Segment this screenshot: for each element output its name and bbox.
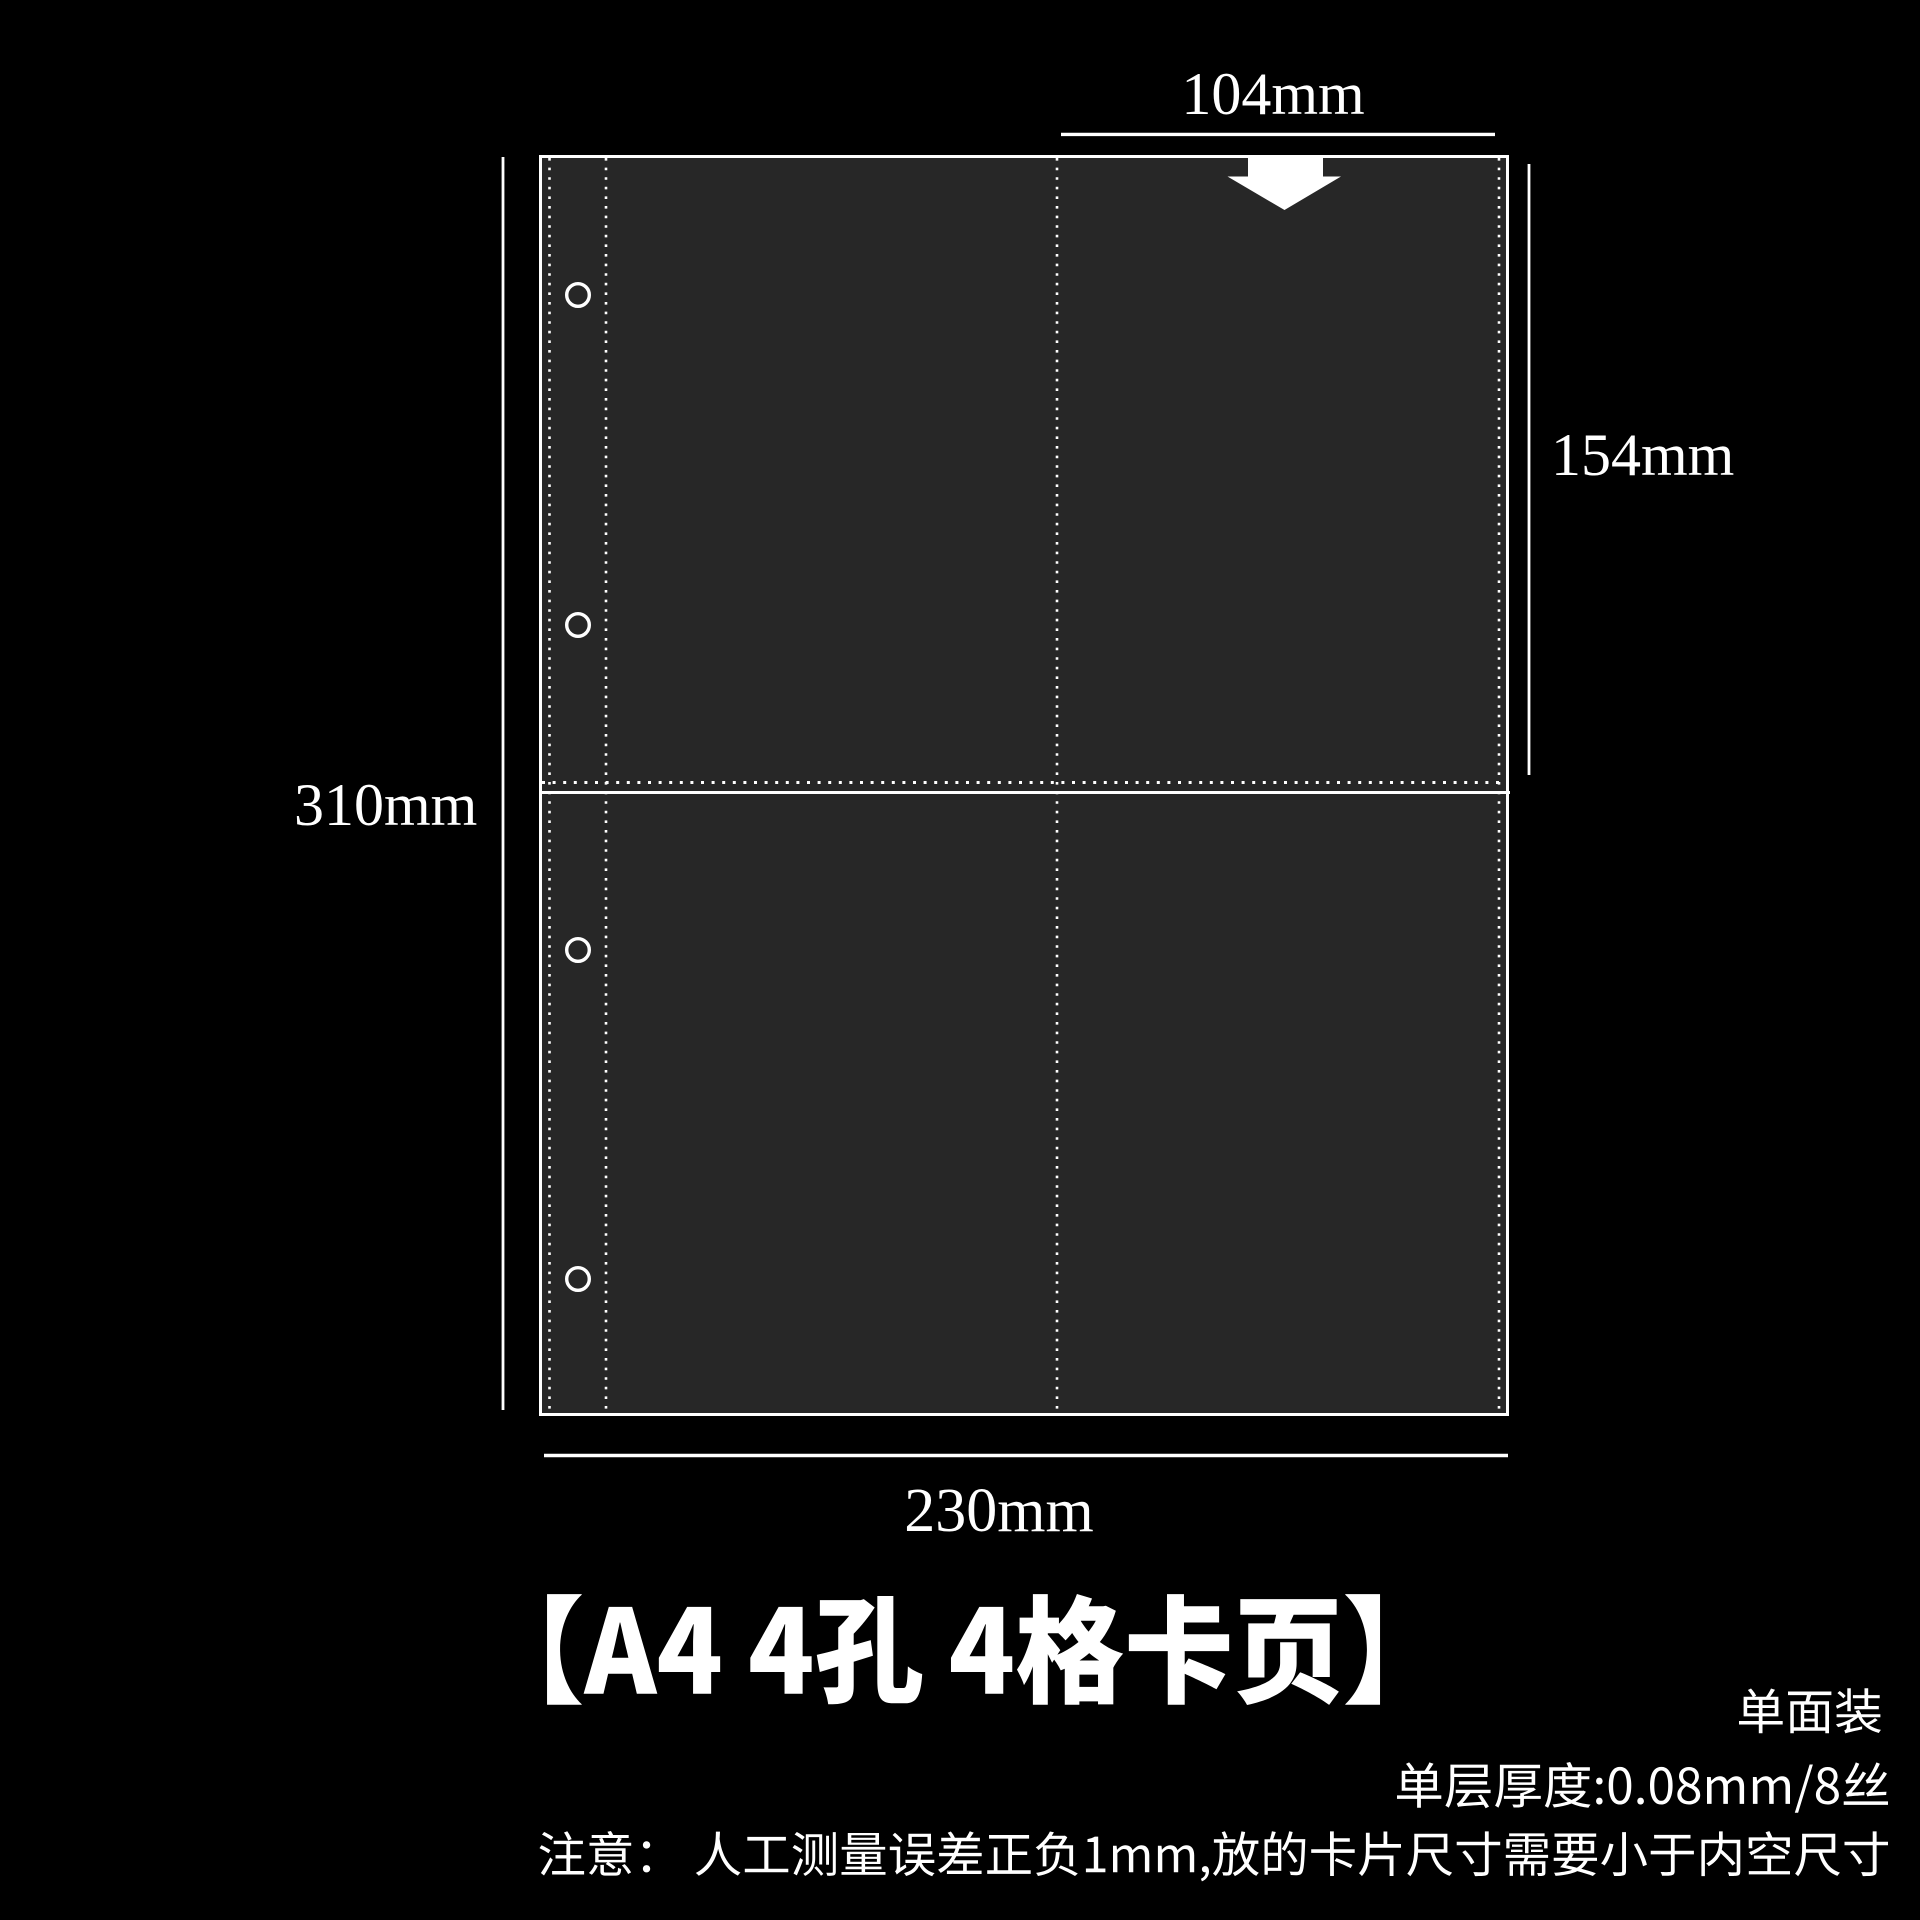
svg-text:154mm: 154mm (1551, 422, 1734, 488)
svg-text:104mm: 104mm (1181, 61, 1364, 127)
svg-text:230mm: 230mm (904, 1477, 1093, 1545)
svg-text:310mm: 310mm (294, 772, 477, 838)
